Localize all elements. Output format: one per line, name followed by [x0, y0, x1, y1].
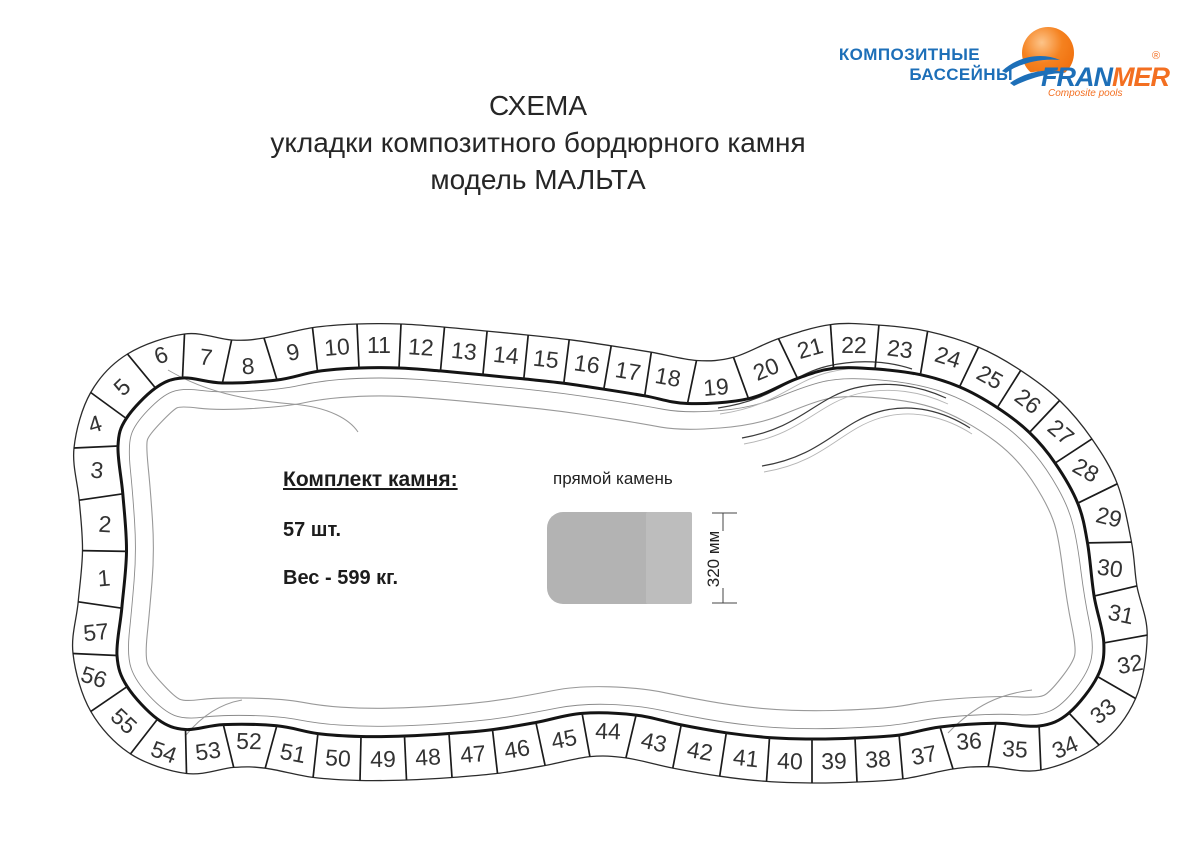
- stone-divider: [645, 352, 652, 396]
- stone-number: 10: [323, 333, 351, 361]
- stone-number: 3: [89, 456, 104, 483]
- stone-number: 43: [639, 727, 670, 758]
- stone-number: 27: [1043, 414, 1079, 450]
- stone-divider: [767, 738, 770, 782]
- stone-divider: [673, 725, 681, 768]
- stone-divider: [688, 361, 697, 404]
- stone-number: 21: [794, 332, 826, 364]
- stone-number: 42: [685, 736, 715, 766]
- stone-number: 51: [278, 738, 308, 768]
- stone-number: 53: [194, 736, 223, 765]
- stone-divider: [855, 738, 857, 782]
- stone-number: 6: [151, 341, 172, 370]
- stone-divider: [988, 723, 996, 766]
- stone-divider: [536, 723, 545, 766]
- stone-number: 36: [955, 727, 982, 755]
- stone-divider: [405, 736, 407, 780]
- stone-number: 26: [1010, 383, 1046, 419]
- dimension-annotation: 320 мм: [704, 513, 737, 603]
- straight-stone-label: прямой камень: [553, 469, 673, 489]
- straight-stone-end: [646, 512, 692, 604]
- kit-quantity: 57 шт.: [283, 519, 458, 542]
- stone-number: 7: [198, 343, 214, 370]
- stone-divider: [183, 334, 185, 378]
- stone-number: 4: [85, 410, 105, 439]
- stone-number: 15: [532, 345, 560, 374]
- stone-number: 28: [1068, 452, 1103, 487]
- stone-divider: [831, 325, 834, 369]
- stone-number: 9: [284, 338, 302, 366]
- stone-divider: [720, 733, 727, 776]
- stone-number: 22: [841, 332, 867, 358]
- stone-number: 34: [1048, 730, 1082, 764]
- dimension-label: 320 мм: [704, 531, 723, 587]
- straight-stone-figure: [547, 512, 692, 604]
- stone-number: 52: [236, 728, 262, 755]
- stone-number: 49: [370, 746, 396, 772]
- stone-number: 31: [1106, 599, 1136, 630]
- stone-number: 23: [886, 334, 915, 363]
- stone-divider: [1039, 726, 1041, 770]
- steps-swoosh-line: [742, 384, 946, 438]
- stone-number: 25: [973, 359, 1008, 394]
- kit-heading: Комплект камня:: [283, 468, 458, 492]
- stone-divider: [265, 726, 277, 768]
- stone-divider: [920, 331, 927, 374]
- stone-number: 29: [1093, 501, 1124, 532]
- stone-divider: [73, 654, 117, 656]
- stone-divider: [264, 338, 277, 380]
- stone-number: 45: [549, 724, 579, 754]
- stone-divider: [604, 346, 611, 389]
- stone-number: 17: [613, 356, 642, 386]
- stone-divider: [449, 734, 452, 778]
- stone-divider: [83, 551, 127, 552]
- stone-number: 32: [1115, 649, 1145, 679]
- stone-number: 46: [502, 734, 531, 764]
- stone-number: 1: [97, 565, 112, 592]
- stone-number: 5: [108, 373, 135, 401]
- stone-divider: [1088, 542, 1132, 543]
- stone-number: 37: [909, 740, 939, 770]
- stone-number: 11: [367, 332, 391, 358]
- stone-divider: [78, 602, 122, 608]
- stone-divider: [128, 354, 156, 388]
- schema-page: СХЕМА укладки композитного бордюрного ка…: [0, 0, 1200, 848]
- stone-number: 24: [932, 341, 964, 373]
- stone-number: 39: [821, 748, 847, 775]
- stone-divider: [360, 737, 361, 781]
- stone-number: 47: [459, 740, 487, 768]
- stone-number: 57: [82, 618, 110, 646]
- stone-divider: [1078, 484, 1118, 503]
- steps-swoosh-echo: [720, 368, 914, 414]
- stone-divider: [483, 331, 487, 375]
- stone-number: 19: [702, 373, 730, 401]
- stone-number: 13: [450, 337, 478, 365]
- pool-diagram: 1234567891011121314151617181920212223242…: [0, 0, 1200, 848]
- stone-number: 14: [492, 341, 520, 369]
- stone-divider: [899, 735, 903, 779]
- stone-number: 2: [98, 511, 112, 538]
- stone-divider: [1104, 635, 1147, 643]
- stone-number: 41: [732, 744, 760, 773]
- steps-swoosh-line: [762, 408, 970, 466]
- stone-divider: [79, 494, 123, 500]
- stone-number: 44: [595, 718, 622, 745]
- stone-number: 38: [864, 745, 891, 773]
- stone-number: 12: [407, 333, 434, 361]
- stone-number: 48: [414, 743, 441, 770]
- stone-number: 8: [241, 353, 255, 380]
- stone-divider: [222, 340, 231, 383]
- stone-divider: [357, 324, 359, 368]
- stone-divider: [399, 324, 401, 368]
- stone-number: 18: [653, 362, 683, 392]
- stone-divider: [779, 339, 798, 379]
- stone-divider: [313, 734, 318, 778]
- stone-divider: [186, 730, 187, 774]
- stone-divider: [564, 340, 569, 384]
- stone-divider: [1094, 586, 1137, 596]
- stone-number: 35: [1001, 735, 1028, 763]
- kit-info: Комплект камня: 57 шт. Вес - 599 кг.: [283, 468, 458, 590]
- steps-swoosh-echo: [764, 414, 972, 472]
- stone-divider: [940, 727, 953, 769]
- stone-divider: [524, 335, 528, 379]
- stone-number: 55: [106, 703, 142, 739]
- stone-divider: [626, 715, 636, 758]
- stone-number: 40: [777, 748, 803, 775]
- stone-divider: [313, 328, 318, 372]
- kit-weight: Вес - 599 кг.: [283, 567, 458, 590]
- stone-number: 33: [1085, 693, 1121, 729]
- stone-number: 16: [572, 349, 601, 378]
- stone-divider: [734, 357, 749, 398]
- stone-divider: [74, 446, 118, 448]
- stone-number: 50: [324, 744, 351, 772]
- stone-number: 54: [148, 735, 181, 768]
- stone-divider: [223, 725, 233, 768]
- stone-number: 30: [1096, 554, 1125, 583]
- stone-divider: [493, 730, 498, 774]
- stone-divider: [441, 327, 445, 371]
- stone-number: 20: [749, 352, 783, 386]
- stone-number: 56: [78, 661, 110, 693]
- stone-divider: [582, 713, 590, 756]
